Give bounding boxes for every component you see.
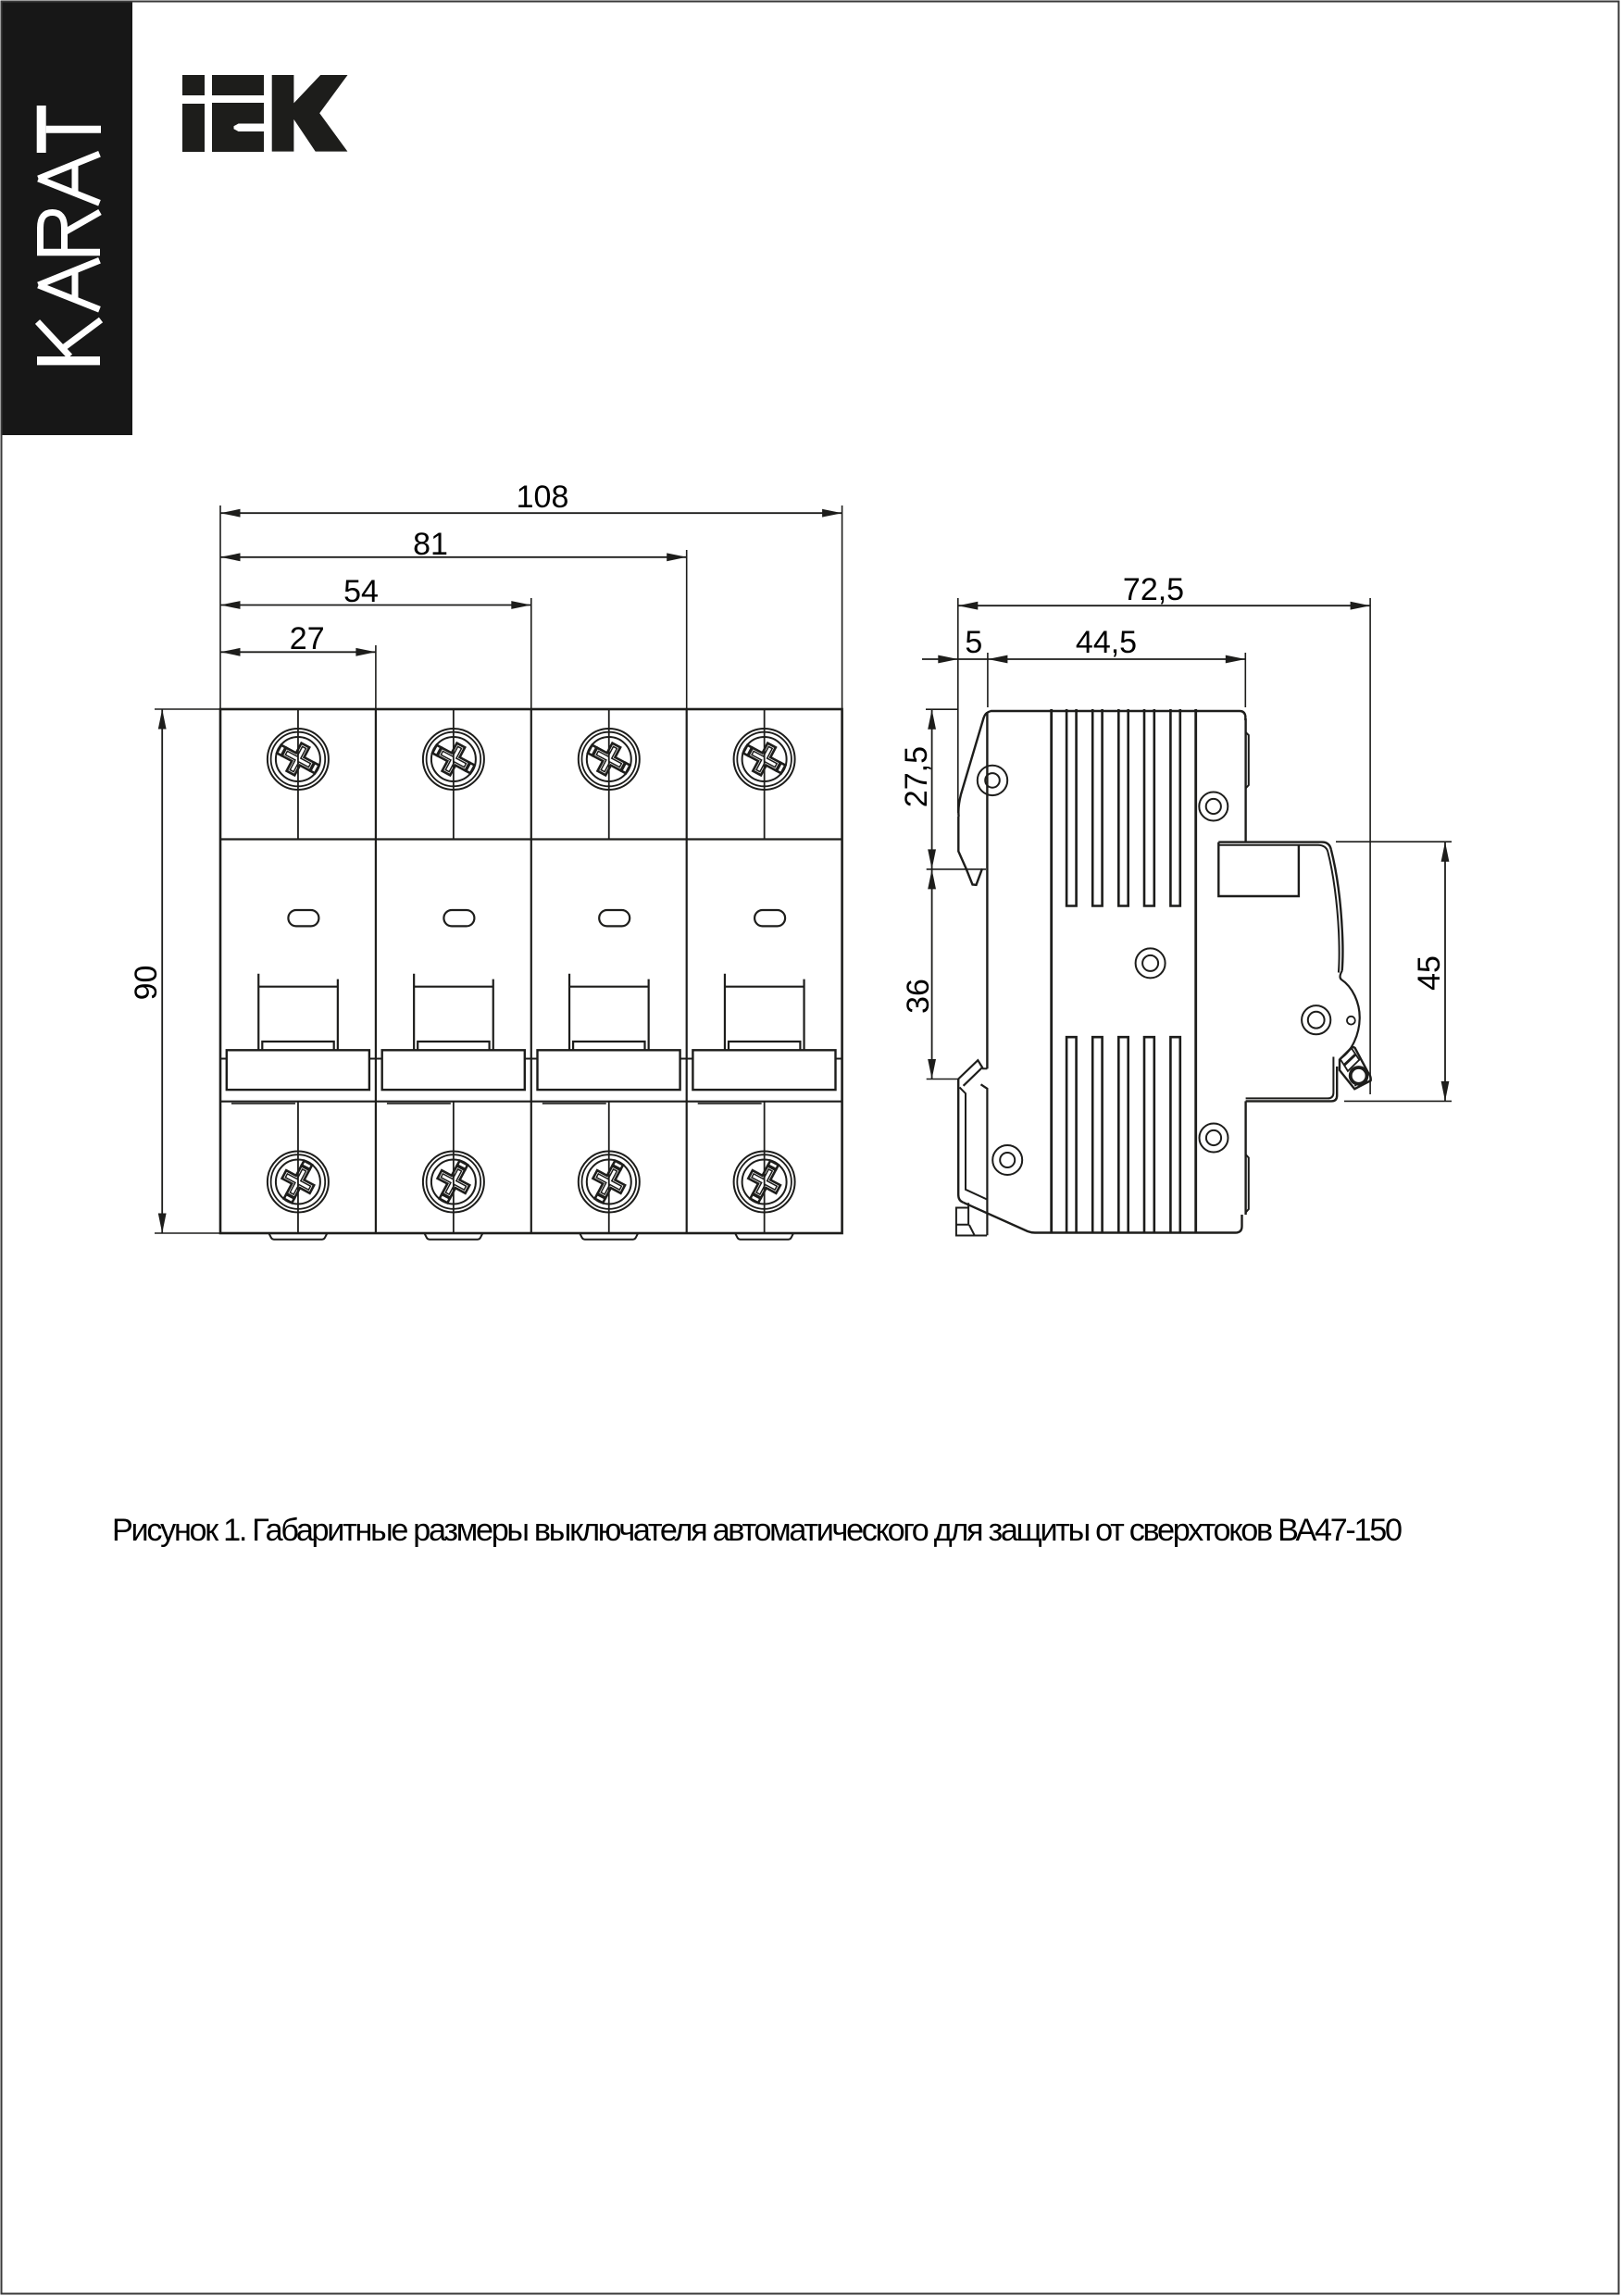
- svg-text:54: 54: [343, 574, 379, 609]
- svg-text:Рисунок 1. Габаритные размеры: Рисунок 1. Габаритные размеры выключател…: [112, 1513, 1403, 1548]
- svg-text:27,5: 27,5: [899, 746, 934, 807]
- svg-text:90: 90: [129, 966, 164, 1001]
- svg-text:45: 45: [1412, 955, 1447, 991]
- svg-text:36: 36: [901, 979, 936, 1014]
- svg-text:108: 108: [517, 480, 569, 515]
- svg-text:27: 27: [290, 621, 325, 656]
- svg-text:5: 5: [965, 625, 982, 660]
- svg-text:72,5: 72,5: [1123, 572, 1184, 607]
- svg-text:81: 81: [413, 527, 448, 562]
- svg-text:44,5: 44,5: [1076, 625, 1137, 660]
